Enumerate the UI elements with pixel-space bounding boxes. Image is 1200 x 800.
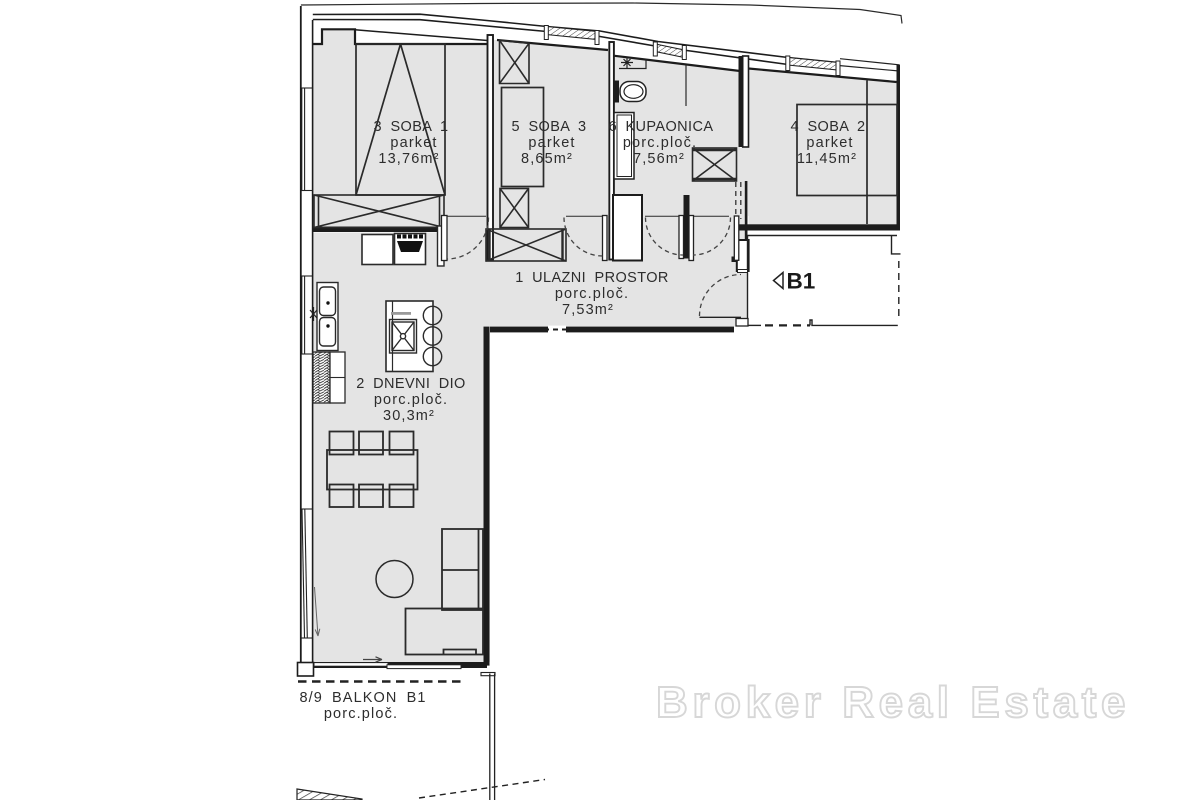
svg-text:7,56m²: 7,56m²	[633, 151, 685, 167]
svg-text:11,45m²: 11,45m²	[797, 151, 857, 167]
svg-text:1 ULAZNI PROSTOR: 1 ULAZNI PROSTOR	[515, 270, 669, 286]
svg-text:30,3m²: 30,3m²	[383, 408, 435, 424]
svg-text:5 SOBA 3: 5 SOBA 3	[512, 119, 587, 135]
svg-text:6 KUPAONICA: 6 KUPAONICA	[609, 119, 714, 135]
svg-text:13,76m²: 13,76m²	[378, 151, 439, 167]
svg-text:porc.ploč.: porc.ploč.	[374, 392, 448, 408]
svg-text:parket: parket	[528, 135, 575, 151]
svg-text:4 SOBA 2: 4 SOBA 2	[791, 119, 866, 135]
svg-text:7,53m²: 7,53m²	[562, 302, 614, 318]
svg-text:porc.ploč.: porc.ploč.	[555, 286, 629, 302]
svg-text:2 DNEVNI DIO: 2 DNEVNI DIO	[356, 376, 466, 392]
svg-text:3 SOBA 1: 3 SOBA 1	[374, 119, 449, 135]
svg-text:B1: B1	[787, 269, 816, 294]
svg-text:parket: parket	[390, 135, 437, 151]
svg-text:porc.ploč.: porc.ploč.	[623, 135, 697, 151]
svg-text:porc.ploč.: porc.ploč.	[324, 706, 398, 722]
svg-text:8/9 BALKON B1: 8/9 BALKON B1	[299, 690, 426, 706]
svg-text:8,65m²: 8,65m²	[521, 151, 573, 167]
svg-text:Broker Real Estate: Broker Real Estate	[656, 678, 1130, 727]
svg-text:parket: parket	[806, 135, 853, 151]
